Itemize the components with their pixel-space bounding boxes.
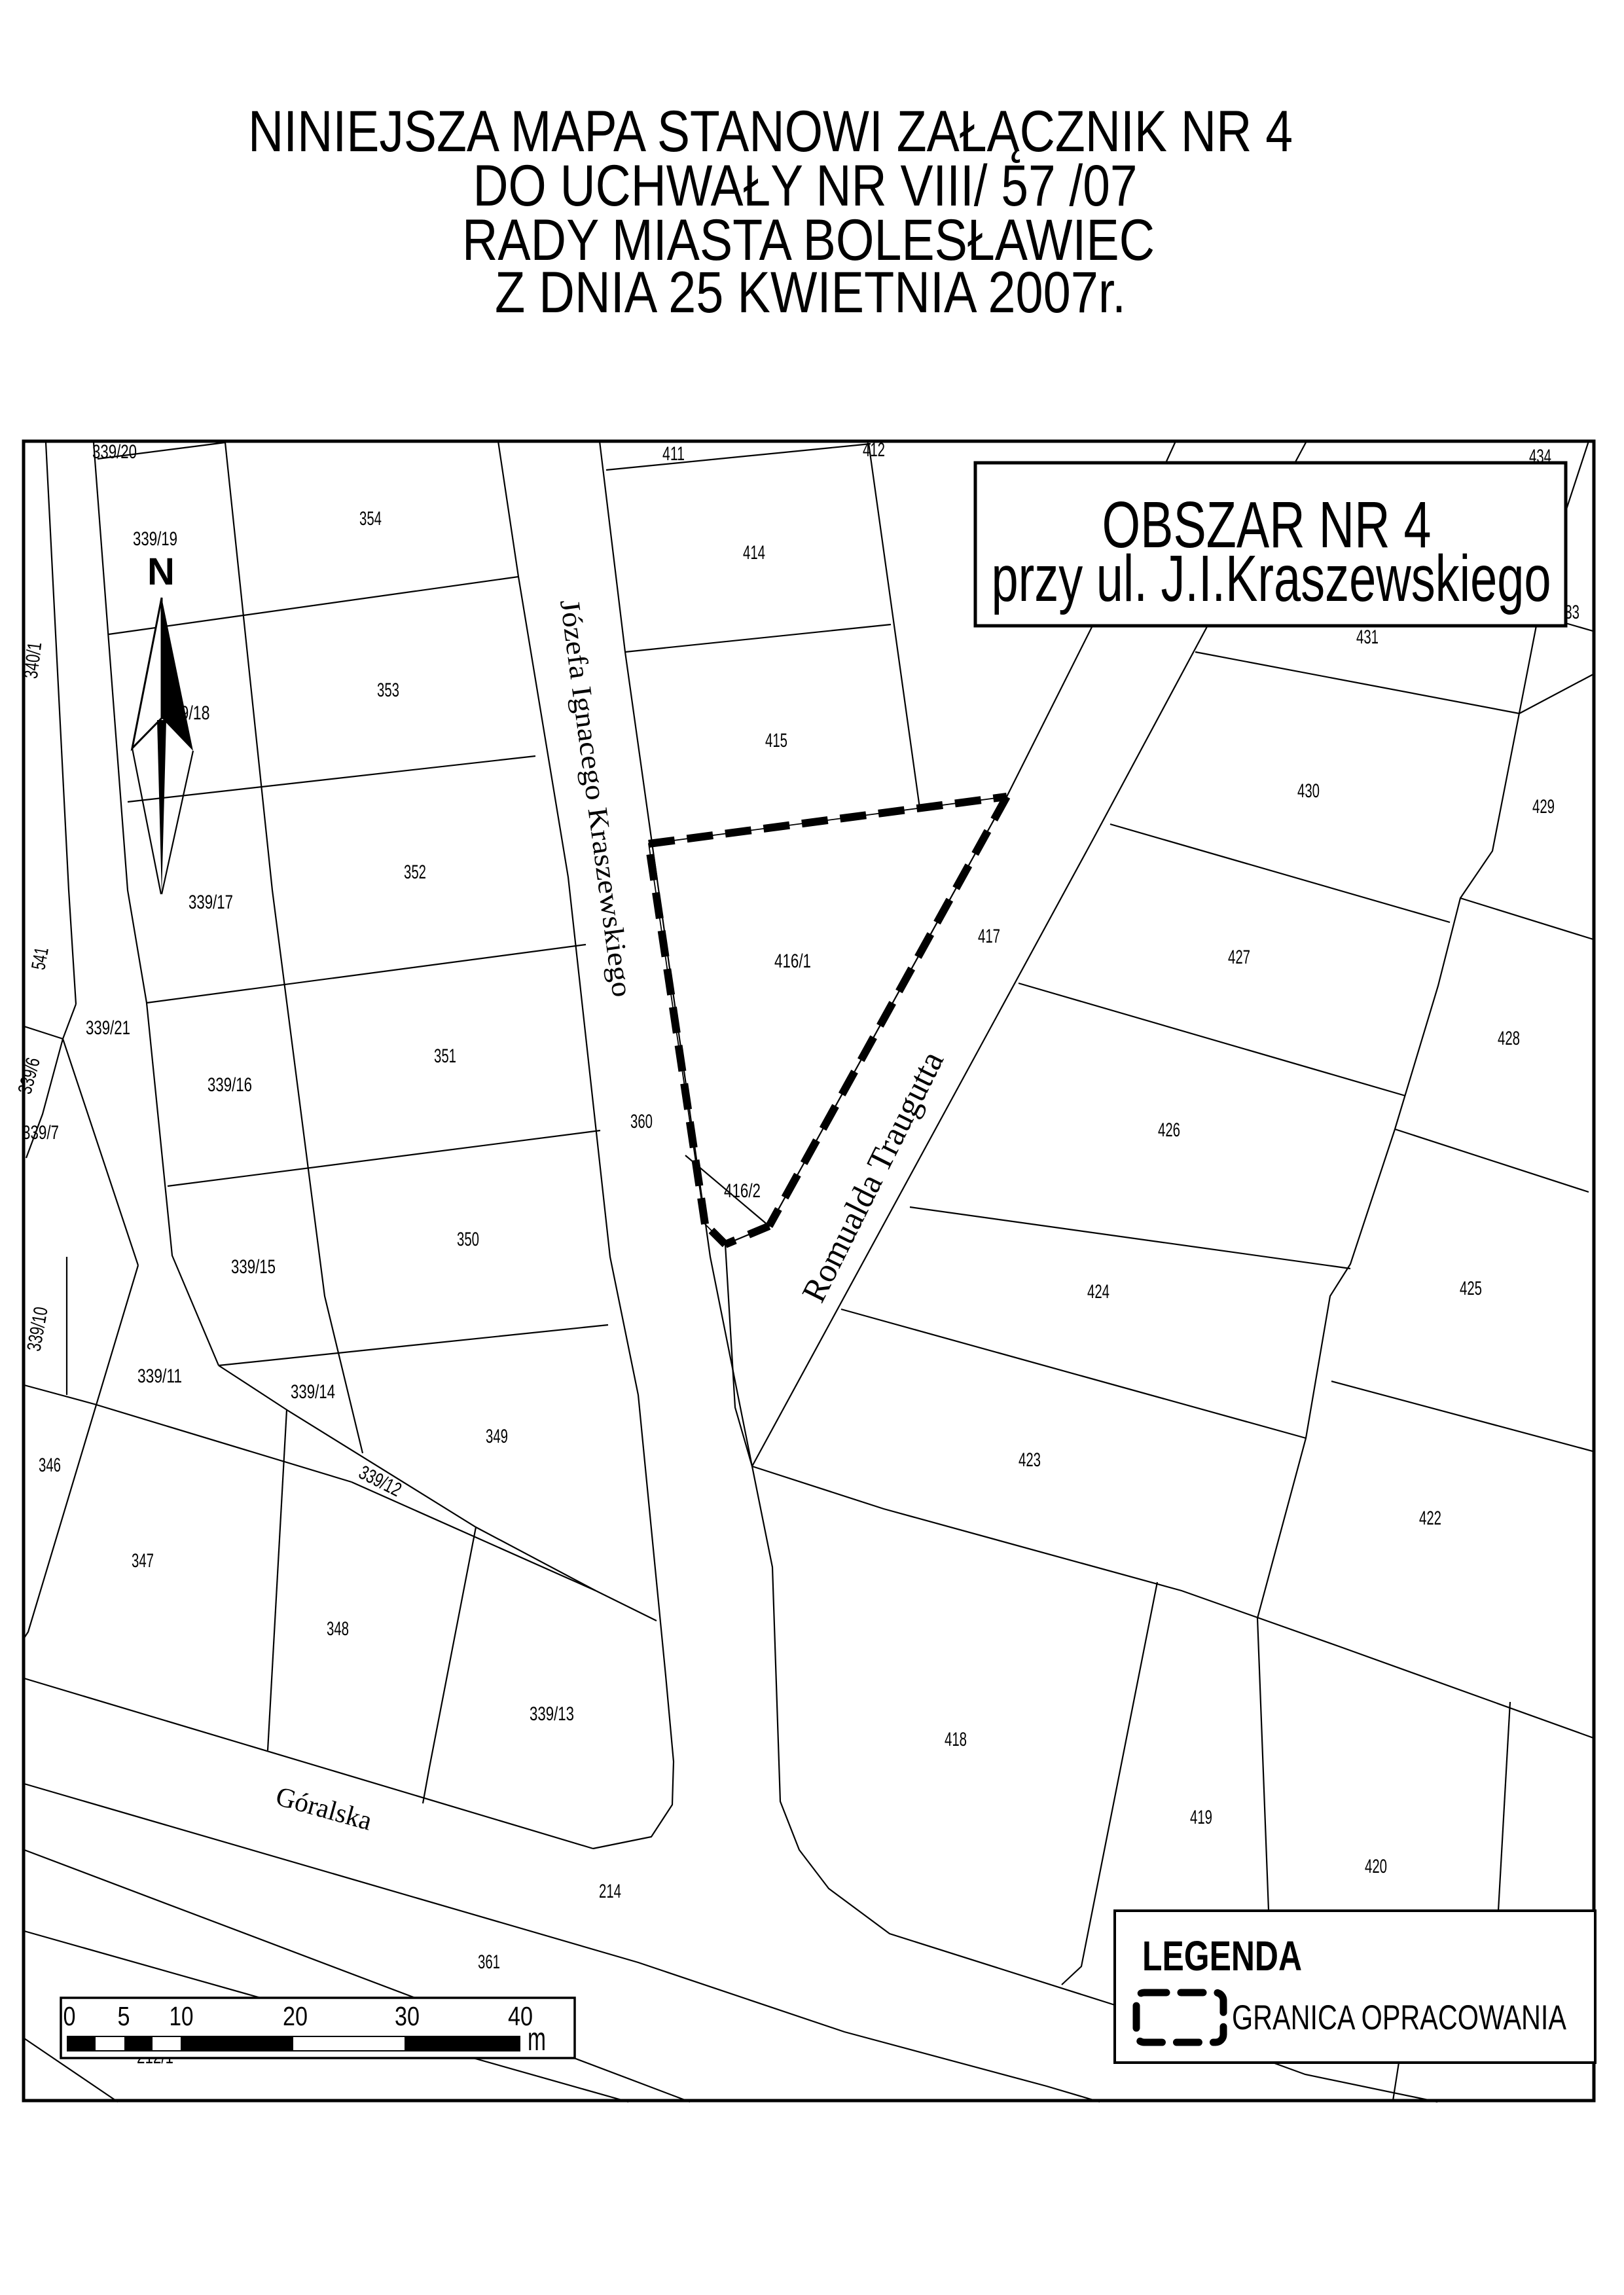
svg-text:przy ul. J.I.Kraszewskiego: przy ul. J.I.Kraszewskiego bbox=[992, 542, 1551, 615]
svg-text:417: 417 bbox=[978, 926, 1000, 947]
svg-text:339/11: 339/11 bbox=[137, 1365, 182, 1387]
svg-text:425: 425 bbox=[1460, 1278, 1482, 1299]
svg-text:10: 10 bbox=[170, 2001, 194, 2031]
svg-text:418: 418 bbox=[945, 1729, 967, 1750]
svg-text:360: 360 bbox=[630, 1111, 653, 1132]
svg-text:LEGENDA: LEGENDA bbox=[1142, 1932, 1302, 1979]
svg-text:429: 429 bbox=[1532, 796, 1555, 818]
svg-text:348: 348 bbox=[327, 1618, 349, 1640]
svg-text:415: 415 bbox=[765, 730, 787, 751]
svg-text:GRANICA OPRACOWANIA: GRANICA OPRACOWANIA bbox=[1232, 1998, 1566, 2037]
svg-text:353: 353 bbox=[377, 679, 399, 701]
svg-text:428: 428 bbox=[1498, 1028, 1520, 1049]
svg-text:339/17: 339/17 bbox=[189, 892, 233, 913]
svg-text:427: 427 bbox=[1228, 947, 1250, 968]
svg-text:541: 541 bbox=[27, 946, 52, 971]
svg-text:Z DNIA 25 KWIETNIA 2007r.: Z DNIA 25 KWIETNIA 2007r. bbox=[495, 259, 1126, 325]
svg-text:361: 361 bbox=[478, 1951, 500, 1973]
svg-text:347: 347 bbox=[132, 1550, 154, 1572]
svg-text:351: 351 bbox=[434, 1045, 456, 1067]
svg-text:339/13: 339/13 bbox=[530, 1703, 574, 1725]
svg-text:214: 214 bbox=[599, 1881, 621, 1902]
svg-text:416/2: 416/2 bbox=[724, 1180, 761, 1202]
svg-text:349: 349 bbox=[486, 1426, 508, 1447]
svg-text:423: 423 bbox=[1019, 1449, 1041, 1471]
svg-text:339/14: 339/14 bbox=[291, 1381, 335, 1403]
svg-text:5: 5 bbox=[118, 2001, 130, 2031]
svg-text:339/7: 339/7 bbox=[22, 1122, 59, 1144]
svg-text:416/1: 416/1 bbox=[774, 950, 811, 972]
svg-text:m: m bbox=[528, 2021, 546, 2057]
svg-text:339/20: 339/20 bbox=[92, 441, 137, 463]
svg-text:339/19: 339/19 bbox=[133, 528, 177, 550]
svg-text:411: 411 bbox=[662, 443, 685, 465]
svg-text:430: 430 bbox=[1297, 780, 1320, 802]
svg-text:354: 354 bbox=[359, 508, 382, 530]
svg-text:431: 431 bbox=[1356, 626, 1379, 648]
svg-text:414: 414 bbox=[743, 542, 765, 564]
svg-text:20: 20 bbox=[283, 2001, 308, 2031]
svg-text:N: N bbox=[147, 551, 175, 593]
svg-text:352: 352 bbox=[404, 861, 426, 883]
svg-text:420: 420 bbox=[1365, 1856, 1387, 1877]
svg-text:9/18: 9/18 bbox=[181, 702, 210, 724]
svg-text:340/1: 340/1 bbox=[20, 641, 46, 680]
svg-text:0: 0 bbox=[63, 2001, 76, 2031]
svg-text:422: 422 bbox=[1419, 1508, 1441, 1529]
svg-text:339/21: 339/21 bbox=[86, 1017, 130, 1039]
svg-text:346: 346 bbox=[39, 1455, 61, 1476]
svg-text:30: 30 bbox=[395, 2001, 420, 2031]
svg-text:339/16: 339/16 bbox=[208, 1074, 252, 1096]
svg-text:350: 350 bbox=[457, 1229, 479, 1250]
svg-text:424: 424 bbox=[1087, 1281, 1110, 1303]
svg-text:426: 426 bbox=[1158, 1119, 1180, 1141]
svg-text:339/15: 339/15 bbox=[231, 1256, 276, 1278]
svg-text:412: 412 bbox=[863, 439, 885, 461]
svg-text:419: 419 bbox=[1190, 1807, 1212, 1828]
